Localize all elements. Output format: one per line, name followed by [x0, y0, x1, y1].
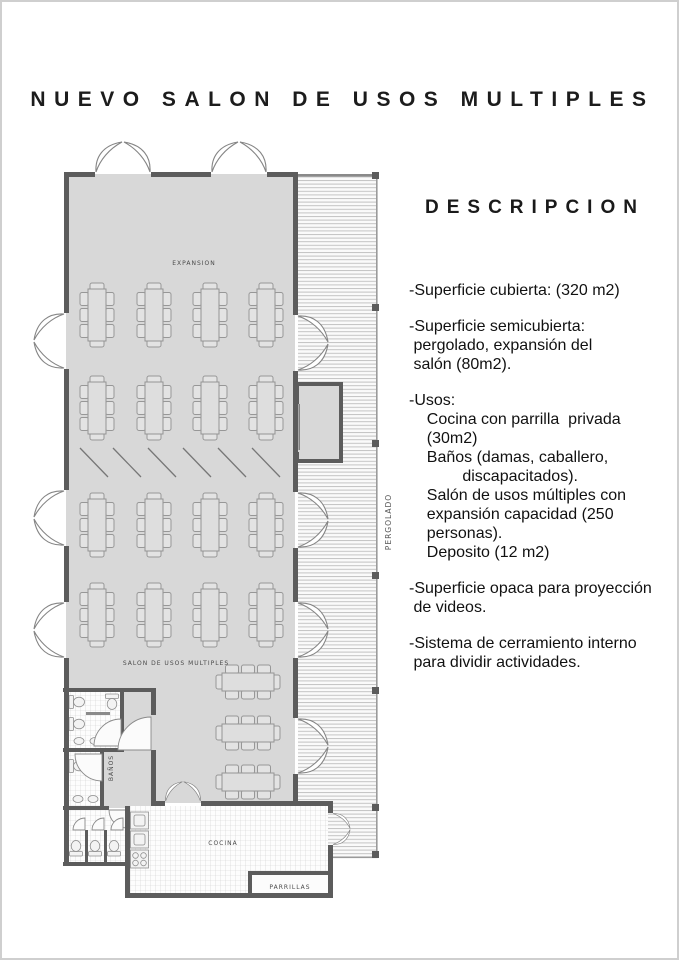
description-line: -Superficie opaca para proyección [409, 579, 677, 598]
description-item: -Superficie cubierta: (320 m2) [409, 281, 677, 300]
table [216, 765, 280, 799]
table [249, 493, 283, 557]
table [193, 283, 227, 347]
sink [74, 738, 84, 745]
table [137, 493, 171, 557]
description-line: Salón de usos múltiples con [409, 486, 677, 505]
description-line: para dividir actividades. [409, 653, 677, 672]
double-door [96, 142, 150, 172]
description-line: -Usos: [409, 391, 677, 410]
table [137, 283, 171, 347]
description-line: -Sistema de cerramiento interno [409, 634, 677, 653]
table [249, 583, 283, 647]
kitchen-appliances [131, 812, 149, 868]
deposito-sliding-door [299, 404, 300, 450]
table [249, 283, 283, 347]
double-door [34, 314, 64, 368]
description-line: personas). [409, 524, 677, 543]
double-door [212, 142, 266, 172]
table [80, 283, 114, 347]
table [193, 493, 227, 557]
deposito-room [295, 382, 343, 463]
description-line: -Superficie cubierta: (320 m2) [409, 281, 677, 300]
cocina-label: COCINA [208, 840, 237, 847]
pergola-deck [298, 172, 379, 858]
sink [73, 796, 83, 803]
description-item: -Usos: Cocina con parrilla privada (30m2… [409, 391, 677, 562]
description-panel: DESCRIPCION -Superficie cubierta: (320 m… [409, 197, 677, 689]
expansion-label: EXPANSION [172, 260, 216, 267]
description-line: expansión capacidad (250 [409, 505, 677, 524]
table [80, 376, 114, 440]
parrillas-label: PARRILLAS [269, 884, 310, 891]
pergolado-label: PERGOLADO [384, 494, 393, 550]
table [137, 583, 171, 647]
double-door [34, 491, 64, 545]
table [193, 583, 227, 647]
salon-label: SALON DE USOS MULTIPLES [123, 660, 229, 667]
description-line: Deposito (12 m2) [409, 543, 677, 562]
table [216, 716, 280, 750]
table [249, 376, 283, 440]
description-line: Cocina con parrilla privada [409, 410, 677, 429]
description-line: de videos. [409, 598, 677, 617]
description-item: -Superficie semicubierta: pergolado, exp… [409, 317, 677, 374]
description-heading: DESCRIPCION [425, 197, 677, 219]
table [193, 376, 227, 440]
table [80, 493, 114, 557]
table [216, 665, 280, 699]
banos-label: BAÑOS [108, 755, 115, 781]
table [80, 583, 114, 647]
description-line: pergolado, expansión del [409, 336, 677, 355]
description-item: -Superficie opaca para proyección de vid… [409, 579, 677, 617]
description-line: salón (80m2). [409, 355, 677, 374]
description-line: Baños (damas, caballero, [409, 448, 677, 467]
shelf [86, 712, 110, 715]
sink [88, 796, 98, 803]
description-line: (30m2) [409, 429, 677, 448]
description-line: discapacitados). [409, 467, 677, 486]
page: NUEVO SALON DE USOS MULTIPLES [0, 0, 679, 960]
table [137, 376, 171, 440]
description-item: -Sistema de cerramiento interno para div… [409, 634, 677, 672]
double-door [34, 603, 64, 657]
description-line: -Superficie semicubierta: [409, 317, 677, 336]
